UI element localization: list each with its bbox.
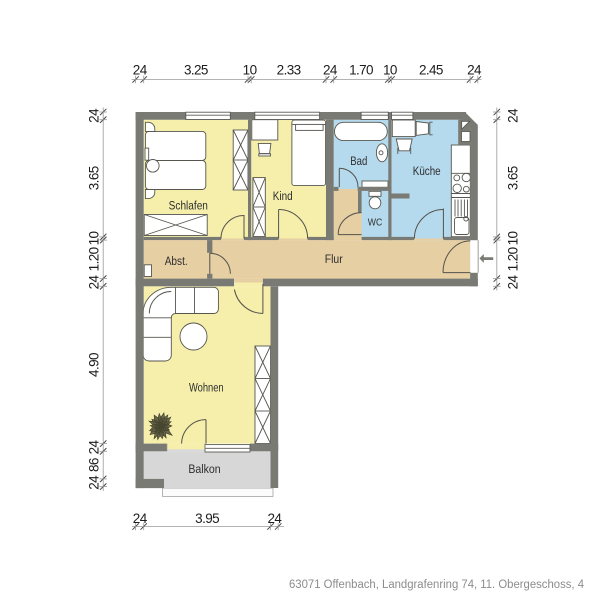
svg-text:24: 24 — [86, 440, 101, 455]
svg-text:Schlafen: Schlafen — [169, 200, 208, 213]
svg-text:1.20: 1.20 — [505, 247, 520, 271]
svg-text:24: 24 — [267, 511, 282, 526]
svg-text:10: 10 — [243, 63, 257, 78]
svg-text:Kind: Kind — [273, 190, 293, 203]
svg-text:10: 10 — [383, 63, 397, 78]
svg-text:24: 24 — [86, 108, 101, 123]
svg-text:24: 24 — [505, 275, 520, 290]
svg-text:3.65: 3.65 — [505, 166, 520, 190]
svg-text:Balkon: Balkon — [188, 464, 220, 477]
svg-text:2.33: 2.33 — [277, 63, 301, 78]
svg-text:Abst.: Abst. — [165, 255, 188, 268]
svg-text:1.70: 1.70 — [349, 63, 373, 78]
svg-text:Flur: Flur — [325, 253, 343, 266]
svg-text:Bad: Bad — [350, 155, 367, 168]
svg-text:4.90: 4.90 — [86, 353, 101, 377]
svg-text:3.95: 3.95 — [195, 511, 219, 526]
svg-text:24: 24 — [133, 511, 148, 526]
svg-text:10: 10 — [505, 232, 520, 246]
svg-text:1.20: 1.20 — [86, 247, 101, 271]
svg-text:10: 10 — [86, 232, 101, 246]
svg-text:2.45: 2.45 — [419, 63, 443, 78]
svg-text:63071 Offenbach, Landgrafenrin: 63071 Offenbach, Landgrafenring 74, 11. … — [289, 579, 585, 591]
svg-text:3.65: 3.65 — [86, 166, 101, 190]
svg-text:3.25: 3.25 — [184, 63, 208, 78]
svg-text:24: 24 — [467, 63, 482, 78]
svg-text:Wohnen: Wohnen — [189, 381, 224, 394]
svg-text:24: 24 — [323, 63, 338, 78]
svg-text:24: 24 — [86, 475, 101, 490]
svg-text:WC: WC — [368, 217, 383, 228]
svg-text:24: 24 — [133, 63, 148, 78]
svg-text:Küche: Küche — [413, 165, 441, 178]
svg-text:86: 86 — [86, 458, 101, 472]
svg-text:24: 24 — [86, 275, 101, 290]
svg-text:24: 24 — [505, 108, 520, 123]
